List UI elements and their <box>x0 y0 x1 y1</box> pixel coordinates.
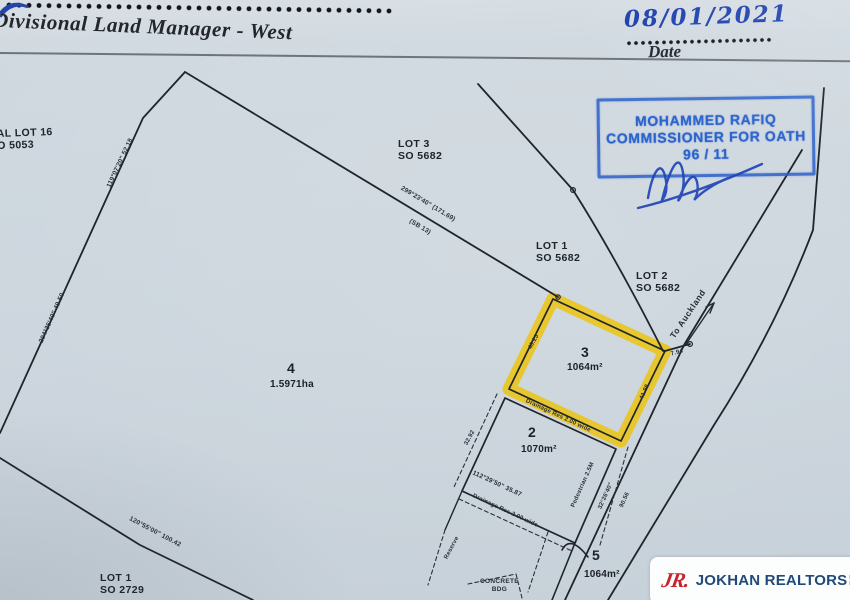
stamp-name: MOHAMMED RAFIQ <box>635 111 777 129</box>
parcel5-area: 1064m² <box>584 569 620 580</box>
handwritten-date: 08/01/2021 <box>624 0 790 33</box>
parcel2-area: 1070m² <box>521 444 557 455</box>
scanned-survey-document: Divisional Land Manager - West 08/01/202… <box>0 0 850 600</box>
concrete-building-label: CONCRETE BDG <box>480 578 519 594</box>
signature-scribble <box>600 140 800 220</box>
bal-lot16-label: AL LOT 16 O 5053 <box>0 126 53 152</box>
parcel5-number: 5 <box>592 547 600 563</box>
parcel2-number: 2 <box>528 424 536 440</box>
parcel3-number: 3 <box>581 344 589 360</box>
parcel4-area: 1.5971ha <box>270 379 314 390</box>
lot1-so2729-label: LOT 1 SO 2729 <box>100 572 144 596</box>
survey-plan-lines <box>0 0 850 600</box>
jokhan-realtors-logo: JR. JOKHAN REALTORS PTE LTD <box>650 557 850 600</box>
lot1-so5682-label: LOT 1 SO 5682 <box>536 240 580 264</box>
parcel3-area: 1064m² <box>567 362 603 373</box>
lot3-so5682-label: LOT 3 SO 5682 <box>398 138 442 162</box>
logo-company-name: JOKHAN REALTORS <box>696 572 848 589</box>
parcel4-number: 4 <box>287 360 295 376</box>
lot2-so5682-label: LOT 2 SO 5682 <box>636 270 680 294</box>
logo-monogram: JR. <box>660 568 691 593</box>
